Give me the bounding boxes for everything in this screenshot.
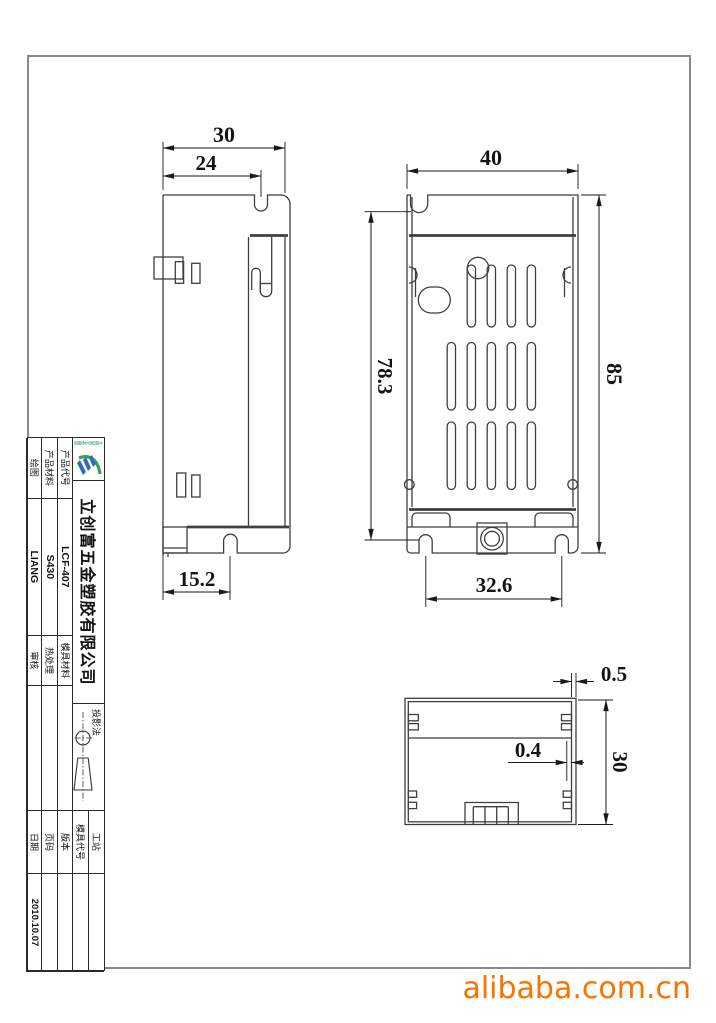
third-angle-projection-icon xyxy=(74,706,94,806)
title-block: 立创富五金塑胶 立创富五金塑胶有限公司 投影法 工站 模具代号 产品代号 LCF… xyxy=(27,437,105,971)
side-slot xyxy=(192,263,200,283)
company-name: 立创富五金塑胶有限公司 xyxy=(73,481,105,704)
dim-top-wall: 0.5 xyxy=(601,662,627,686)
side-tab xyxy=(154,257,183,279)
drawn-by-value: LIANG xyxy=(26,499,42,636)
logo-caption: 立创富五金塑胶 xyxy=(75,439,104,446)
dim-side-bottom: 15.2 xyxy=(179,567,216,591)
top-outer xyxy=(405,698,576,824)
front-left-tab xyxy=(412,513,450,527)
mold-material-value xyxy=(57,686,73,811)
dim-side-notch-width: 24 xyxy=(196,151,218,175)
page-number-label: 页码 xyxy=(42,811,58,874)
dim-top-inner-wall: 0.4 xyxy=(515,738,542,762)
dim-front-top-width: 40 xyxy=(480,145,502,170)
front-right-tab xyxy=(535,513,573,527)
drawing-sheet: 30 24 15.2 xyxy=(0,0,716,1023)
front-view: 40 85 78.3 32.6 xyxy=(365,145,628,607)
front-boss-hole-inner xyxy=(485,531,500,546)
side-view: 30 24 15.2 xyxy=(154,122,290,600)
heat-treatment-value xyxy=(42,686,58,811)
side-hook xyxy=(260,237,271,297)
checked-by-value xyxy=(26,686,42,811)
front-obround-hole xyxy=(418,287,450,313)
product-code-value: LCF-407 xyxy=(57,499,73,636)
projection-cell: 投影法 xyxy=(73,704,105,811)
front-left-clip xyxy=(409,267,417,297)
product-material-label: 产品材料 xyxy=(42,438,58,499)
side-hook-slot xyxy=(252,268,261,290)
front-hole xyxy=(467,257,488,278)
side-foot-block xyxy=(163,527,187,553)
version-value xyxy=(57,874,73,972)
side-slot xyxy=(177,473,186,497)
front-right-clip xyxy=(563,267,571,297)
product-material-value: S430 xyxy=(42,499,58,636)
company-logo-icon xyxy=(75,447,102,479)
dim-front-bottom-span: 32.6 xyxy=(476,573,513,597)
page-number-value xyxy=(42,874,58,972)
date-label: 日期 xyxy=(26,811,42,874)
checked-by-label: 审核 xyxy=(26,636,42,686)
side-outline xyxy=(163,195,290,553)
top-inner xyxy=(408,702,571,822)
vent-slots-row1 xyxy=(467,265,535,327)
dim-side-top-width: 30 xyxy=(213,122,235,147)
station-label: 工站 xyxy=(88,811,104,874)
watermark: alibaba.com.cn xyxy=(462,971,691,1006)
front-left-side-hole xyxy=(405,480,415,490)
top-side-tabs xyxy=(408,715,571,809)
mold-code-label: 模具代号 xyxy=(73,811,89,874)
date-value: 2010.10.07 xyxy=(26,874,42,972)
top-view: 0.5 0.4 30 xyxy=(405,662,632,825)
mold-code-value xyxy=(73,874,89,972)
station-value xyxy=(88,874,104,972)
heat-treatment-label: 热处理 xyxy=(42,636,58,686)
dim-front-right-height: 85 xyxy=(602,363,627,385)
vent-slots-row2 xyxy=(447,343,535,411)
front-outline xyxy=(407,195,578,527)
vent-slots-row3 xyxy=(447,422,535,490)
side-slot xyxy=(192,475,200,497)
dim-front-left-height: 78.3 xyxy=(373,358,397,395)
company-logo: 立创富五金塑胶 xyxy=(73,438,105,481)
mold-material-label: 模具材料 xyxy=(57,636,73,686)
front-inner-edges xyxy=(412,197,573,507)
product-code-label: 产品代号 xyxy=(57,438,73,499)
version-label: 版本 xyxy=(57,811,73,874)
dim-top-depth: 30 xyxy=(608,752,632,773)
drawn-by-label: 绘图 xyxy=(26,438,42,499)
drawing-canvas: 30 24 15.2 xyxy=(0,0,716,1023)
